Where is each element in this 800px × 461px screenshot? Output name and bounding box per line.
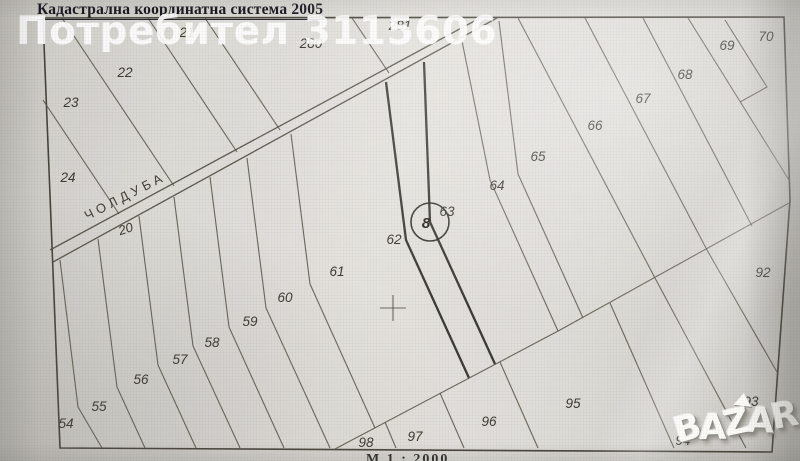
parcel-label-95: 95 bbox=[565, 396, 581, 411]
parcel-label-66: 66 bbox=[587, 118, 603, 133]
survey-point-number: 8 bbox=[422, 215, 431, 232]
parcel-label-58: 58 bbox=[204, 335, 220, 350]
parcel-label-70: 70 bbox=[758, 29, 774, 44]
parcel-label-23: 23 bbox=[62, 95, 79, 110]
parcel-label-60: 60 bbox=[277, 290, 293, 305]
parcel-label-96: 96 bbox=[481, 414, 497, 429]
parcel-label-55: 55 bbox=[91, 399, 107, 414]
parcel-label-54: 54 bbox=[58, 416, 73, 431]
user-watermark: Потребител 3115606 bbox=[16, 9, 497, 54]
parcel-label-98: 98 bbox=[358, 435, 374, 450]
parcel-label-59: 59 bbox=[242, 314, 258, 329]
parcel-label-24: 24 bbox=[59, 170, 75, 185]
parcel-label-64: 64 bbox=[489, 178, 504, 193]
parcel-label-92: 92 bbox=[755, 265, 771, 280]
logo-letter: A bbox=[699, 408, 725, 448]
parcel-label-62: 62 bbox=[386, 232, 402, 247]
parcel-label-97: 97 bbox=[407, 429, 423, 444]
parcel-label-65: 65 bbox=[530, 149, 546, 164]
parcel-label-63: 63 bbox=[439, 204, 455, 219]
parcel-label-61: 61 bbox=[329, 264, 344, 279]
scale-note: М 1 : 2000 bbox=[366, 452, 449, 461]
parcel-label-57: 57 bbox=[172, 352, 188, 367]
parcel-label-68: 68 bbox=[677, 67, 693, 82]
parcel-label-67: 67 bbox=[635, 91, 651, 106]
cadastral-map-drawing: 8 ЧОЛДУБА 20 212223242802815455565758596… bbox=[0, 0, 800, 461]
parcel-label-22: 22 bbox=[116, 65, 133, 80]
parcel-label-69: 69 bbox=[719, 38, 735, 53]
cadastral-map-scan: 8 ЧОЛДУБА 20 212223242802815455565758596… bbox=[0, 0, 800, 461]
parcel-label-56: 56 bbox=[133, 372, 149, 387]
